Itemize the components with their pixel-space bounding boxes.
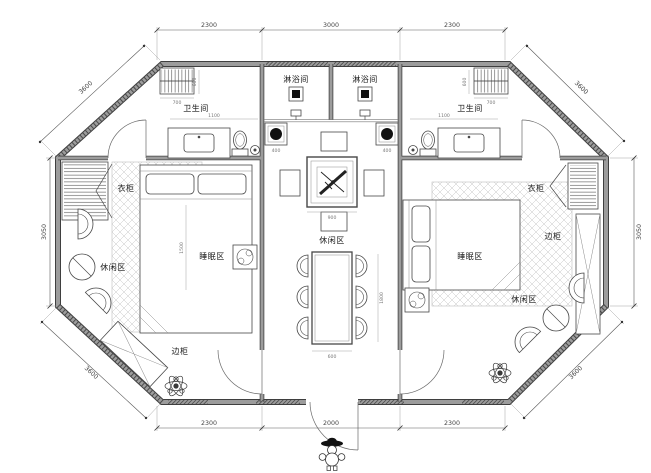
vanity-right	[438, 128, 500, 158]
washbasin-right	[376, 123, 398, 145]
label-shower-right: 淋浴间	[352, 74, 378, 84]
washbasin-left	[265, 123, 287, 145]
dim-left-side: 3050	[41, 224, 48, 240]
floor-plan-sheet: 2300 3000 2300 2300 2000 2300 3050 3050 …	[0, 0, 651, 473]
towel-rack-left	[160, 68, 194, 94]
dim-basin-left: 400	[272, 148, 281, 154]
dim-tea-table: 900	[328, 215, 337, 221]
label-side-cabinet-left: 边柜	[172, 346, 189, 356]
vanity-left	[168, 128, 230, 158]
dim-basin-right: 400	[383, 148, 392, 154]
label-bath-left: 卫生间	[183, 103, 209, 113]
label-bath-right: 卫生间	[457, 103, 483, 113]
dim-rack-width-right: 700	[487, 100, 496, 106]
label-leisure-right: 休闲区	[511, 294, 537, 304]
dim-bath-width-right: 1100	[438, 113, 450, 119]
dim-bath-width-left: 1100	[208, 113, 220, 119]
label-leisure-left: 休闲区	[100, 262, 126, 272]
dim-bed-length-left: 1500	[179, 242, 185, 254]
label-wardrobe-left: 衣柜	[118, 183, 135, 193]
dim-right-side: 3050	[636, 224, 643, 240]
dining-table	[312, 252, 352, 344]
dim-top-left: 2300	[201, 22, 217, 29]
label-leisure-center: 休闲区	[319, 235, 345, 245]
bed-right	[403, 200, 520, 290]
bedside-table-left	[233, 245, 257, 269]
dim-top-right: 2300	[444, 22, 460, 29]
label-sleep-left: 睡眠区	[199, 252, 225, 261]
dim-rack-height-right: 600	[462, 78, 468, 87]
dim-bottom-middle: 2000	[323, 420, 339, 427]
bedside-table-right	[405, 288, 429, 312]
towel-rack-right	[474, 68, 508, 94]
wardrobe-left-cabinet	[62, 162, 112, 220]
dim-dining-length: 1800	[379, 292, 385, 304]
floor-plan-drawing: 2300 3000 2300 2300 2000 2300 3050 3050 …	[0, 0, 651, 473]
dim-top-middle: 3000	[323, 22, 339, 29]
dim-dining-width: 600	[328, 354, 337, 360]
dim-rack-width-left: 700	[173, 100, 182, 106]
tea-table	[307, 157, 357, 207]
dim-bottom-right: 2300	[444, 420, 460, 427]
label-shower-left: 淋浴间	[283, 74, 309, 84]
dim-rack-height-left: 600	[192, 78, 198, 87]
label-wardrobe-right: 衣柜	[528, 183, 545, 193]
label-side-cabinet-right: 边柜	[545, 231, 562, 241]
dim-bottom-left: 2300	[201, 420, 217, 427]
label-sleep-right: 睡眠区	[457, 252, 483, 261]
